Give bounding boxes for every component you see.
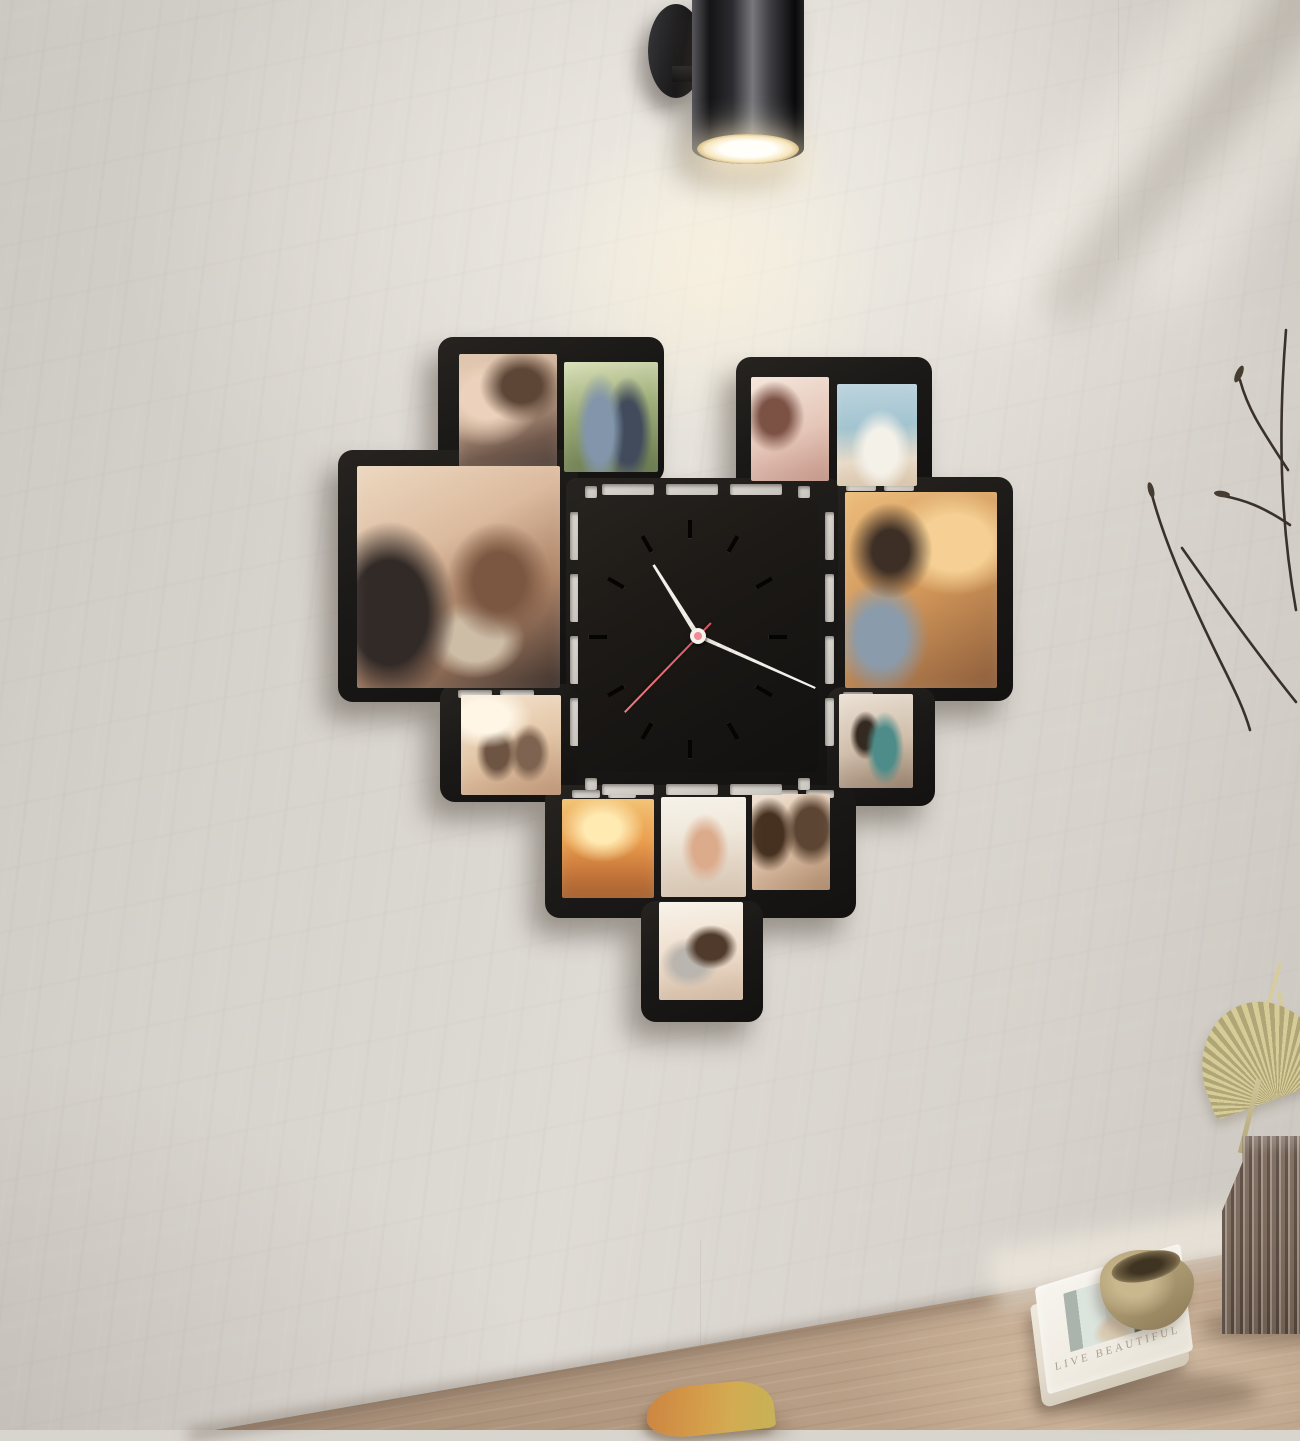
heart-photo-collage-clock bbox=[0, 0, 1300, 1430]
clock-tick-1 bbox=[727, 535, 739, 553]
clock-center-dot bbox=[694, 632, 702, 640]
clock-tick-7 bbox=[641, 722, 653, 740]
clock-tick-8 bbox=[607, 685, 625, 697]
clock-border-slot bbox=[825, 636, 834, 684]
clock-border-slot bbox=[825, 512, 834, 560]
clock-tick-9 bbox=[589, 635, 607, 639]
clock-tick-4 bbox=[755, 685, 773, 697]
clock-tick-10 bbox=[607, 577, 625, 589]
clock-border-corner-slot bbox=[585, 778, 597, 790]
photo-cuddling-bed bbox=[659, 902, 743, 1000]
clock-border-slot bbox=[666, 484, 718, 495]
clock-border-slot bbox=[730, 784, 782, 795]
clock-border-corner-slot bbox=[585, 486, 597, 498]
photo-sunglasses-couple bbox=[357, 466, 560, 688]
clock-tick-2 bbox=[755, 577, 773, 589]
photo-cheek-kiss bbox=[752, 794, 830, 890]
photo-couple-hugging bbox=[459, 354, 557, 468]
clock-border-slot bbox=[602, 784, 654, 795]
photo-street-couple bbox=[839, 694, 913, 788]
clock-border-corner-slot bbox=[798, 486, 810, 498]
photo-seaside-couple bbox=[837, 384, 917, 486]
clock-tick-6 bbox=[688, 740, 692, 758]
photo-beach-sunset bbox=[562, 799, 654, 898]
clock-tick-3 bbox=[769, 635, 787, 639]
frame-cutout-slot bbox=[572, 790, 600, 798]
clock-border-slot bbox=[825, 698, 834, 746]
clock-tick-12 bbox=[688, 520, 692, 538]
photo-foreheads-touching bbox=[751, 377, 829, 481]
clock-border-slot bbox=[602, 484, 654, 495]
clock-tick-5 bbox=[727, 722, 739, 740]
photo-piggyback-beach bbox=[661, 797, 746, 897]
clock-border-corner-slot bbox=[798, 778, 810, 790]
clock-border-slot bbox=[730, 484, 782, 495]
photo-cafe-couple bbox=[461, 695, 561, 795]
photo-couple-park bbox=[564, 362, 658, 472]
clock-center-cap bbox=[690, 628, 706, 644]
photo-golden-light-couple bbox=[845, 492, 997, 688]
clock-border-slot bbox=[825, 574, 834, 622]
clock-border-slot bbox=[666, 784, 718, 795]
clock-tick-11 bbox=[641, 535, 653, 553]
